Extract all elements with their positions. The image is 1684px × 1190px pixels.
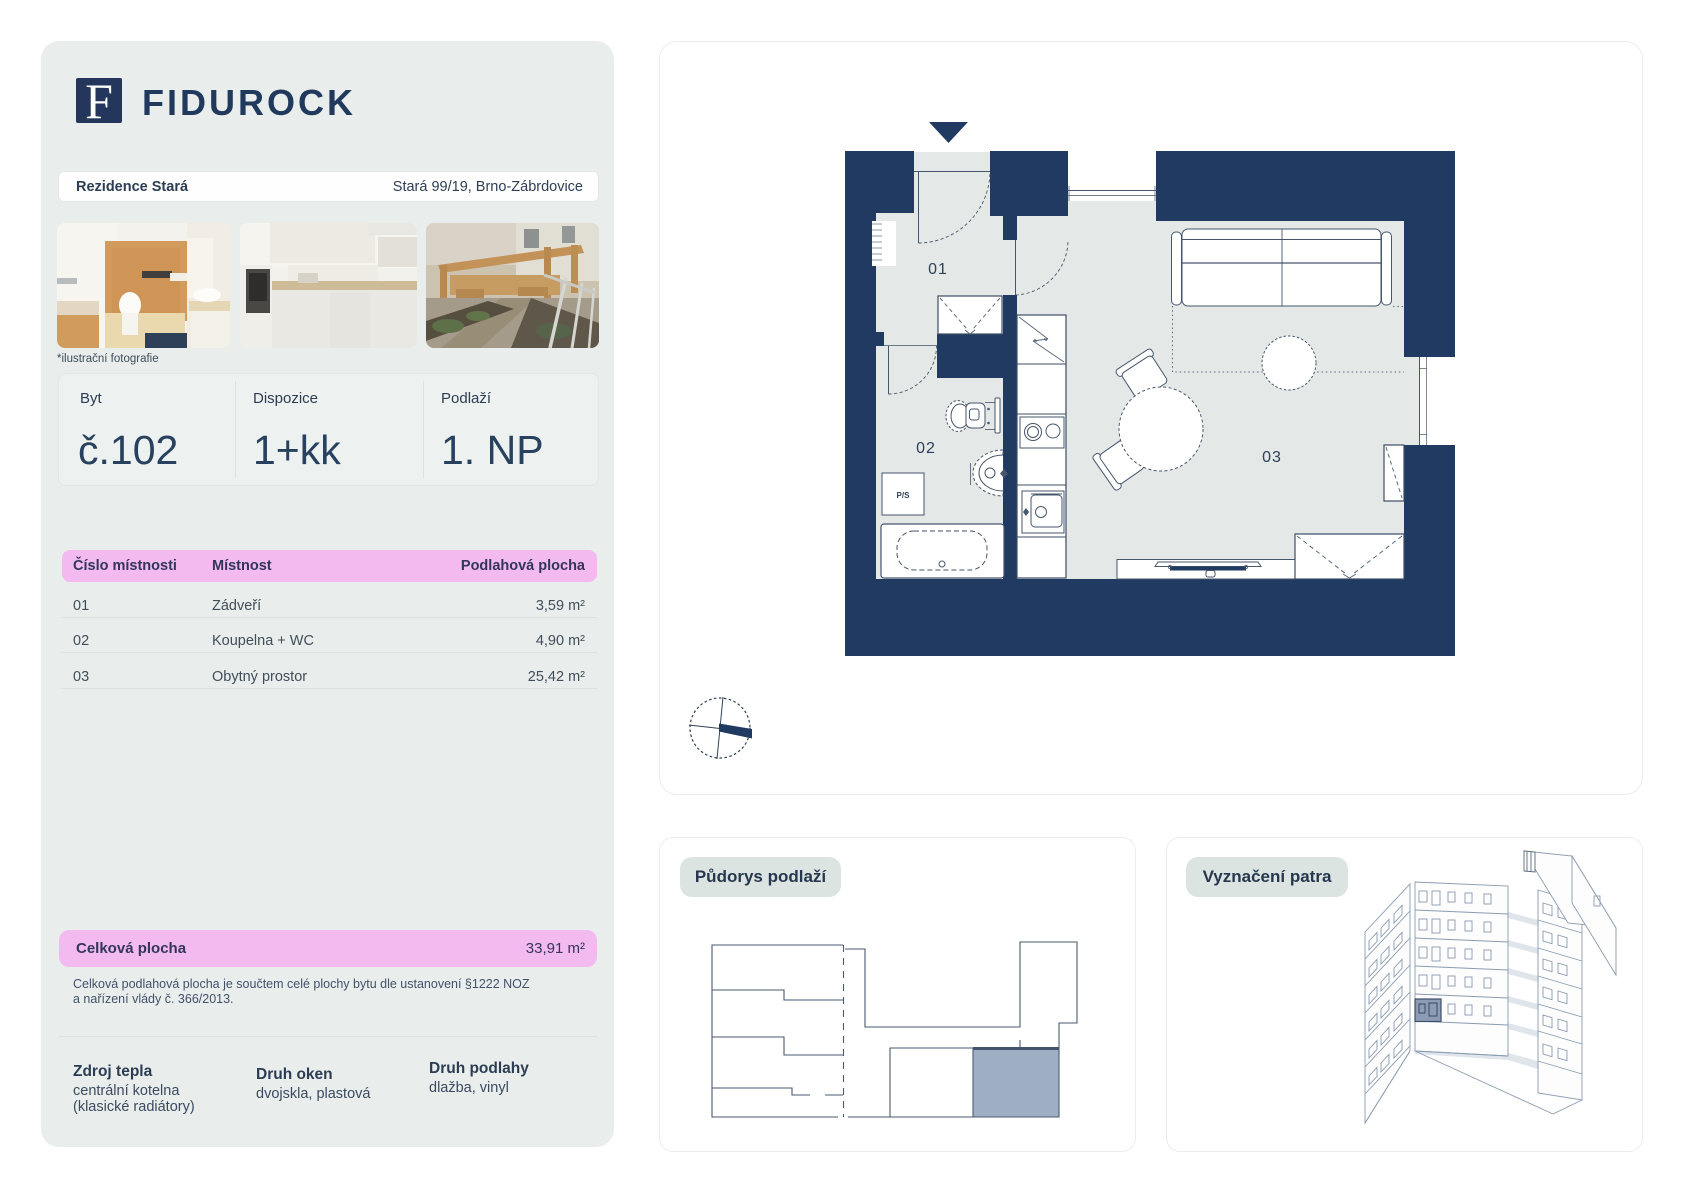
svg-text:03: 03 xyxy=(1262,449,1282,466)
svg-text:01: 01 xyxy=(928,261,948,278)
svg-text:02: 02 xyxy=(916,440,936,457)
svg-text:P/S: P/S xyxy=(897,491,911,500)
